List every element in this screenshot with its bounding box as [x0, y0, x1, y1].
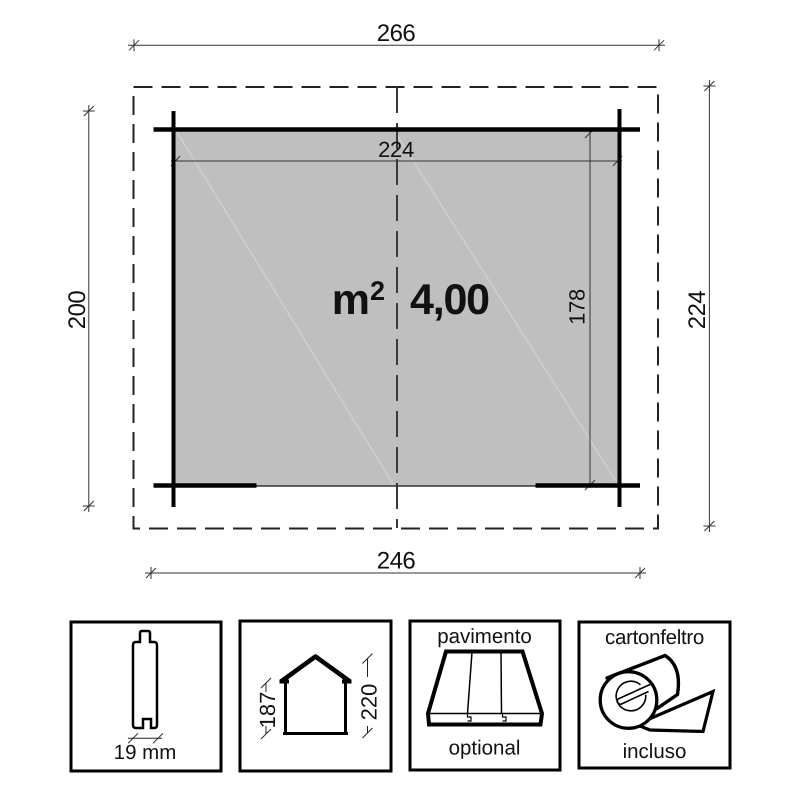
svg-text:224: 224: [684, 291, 711, 330]
svg-text:4,00: 4,00: [410, 276, 489, 324]
svg-text:cartonfeltro: cartonfeltro: [605, 626, 704, 649]
svg-text:incluso: incluso: [623, 740, 687, 763]
svg-text:optional: optional: [449, 736, 521, 759]
svg-text:200: 200: [64, 291, 91, 330]
svg-text:220: 220: [357, 684, 382, 721]
svg-text:266: 266: [377, 20, 416, 47]
svg-text:246: 246: [377, 547, 416, 574]
svg-text:224: 224: [378, 137, 414, 162]
svg-text:187: 187: [255, 692, 280, 729]
svg-text:178: 178: [565, 289, 590, 325]
svg-text:pavimento: pavimento: [437, 625, 532, 648]
svg-text:19 mm: 19 mm: [114, 741, 177, 764]
